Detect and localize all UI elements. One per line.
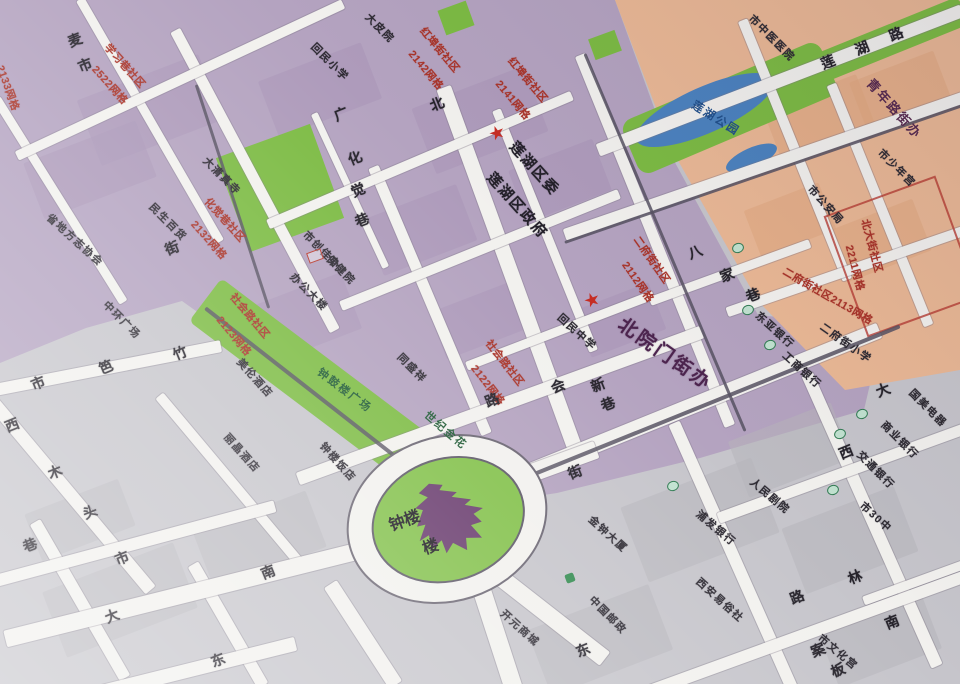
map-photo: 莲湖区委莲湖区政府北院门街办青年路街办钟楼楼莲湖公园钟鼓楼广场世纪金花学习巷社区… xyxy=(0,0,960,684)
street xyxy=(324,580,402,684)
map-label: 国美电器 xyxy=(906,386,951,431)
post-icon xyxy=(564,572,576,584)
school-icon xyxy=(826,483,841,497)
